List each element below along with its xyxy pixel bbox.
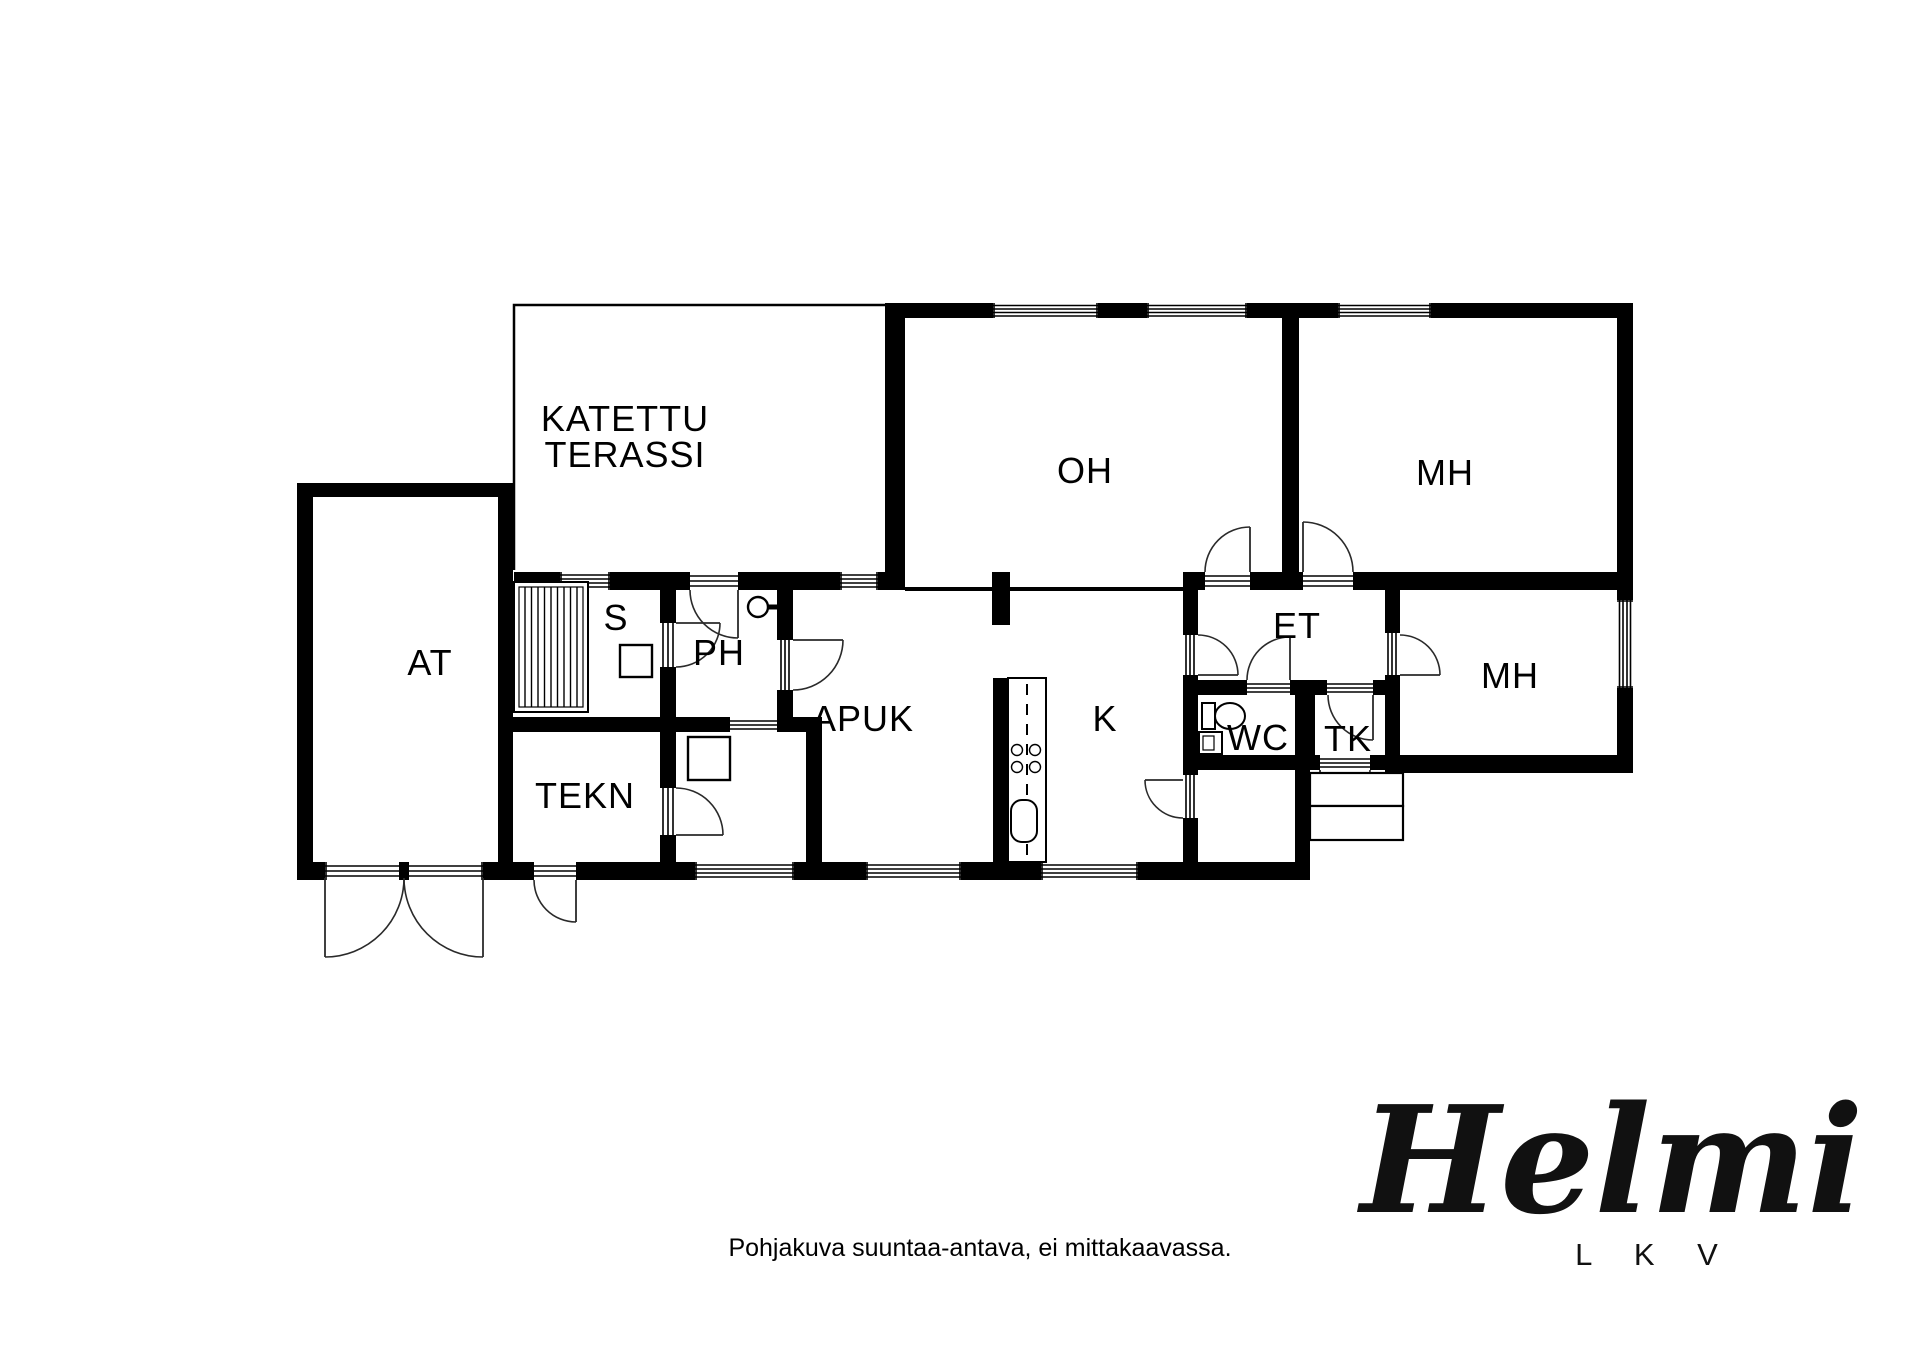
logo-name-text: Helmi bbox=[1356, 1073, 1863, 1247]
window-oh-1 bbox=[993, 303, 1098, 318]
room-label-s: S bbox=[603, 597, 628, 638]
room-label-wc: WC bbox=[1227, 717, 1289, 758]
washing-machine-icon bbox=[688, 737, 730, 780]
room-label-mh-right: MH bbox=[1481, 655, 1539, 696]
door-tekn-shower bbox=[676, 788, 723, 835]
room-label-tekn: TEKN bbox=[535, 775, 635, 816]
door-et-oh bbox=[1205, 527, 1250, 572]
room-label-mh-top: MH bbox=[1416, 452, 1474, 493]
window-oh-2 bbox=[1147, 303, 1247, 318]
window-shower-bottom bbox=[695, 862, 794, 880]
room-label-oh: OH bbox=[1057, 450, 1113, 491]
door-et-mh-right bbox=[1400, 635, 1440, 675]
disclaimer-text: Pohjakuva suuntaa-antava, ei mittakaavas… bbox=[728, 1234, 1231, 1262]
door-at-double-right bbox=[404, 878, 483, 957]
door-et-mh-top bbox=[1303, 522, 1353, 572]
entry-steps bbox=[1310, 773, 1403, 840]
logo-subtitle-text: L K V bbox=[1575, 1237, 1735, 1272]
sauna-bench-icon bbox=[514, 582, 588, 712]
window-apuk-top bbox=[840, 572, 878, 590]
room-label-terrace-line1: KATETTU bbox=[541, 398, 709, 439]
floorplan-page: KATETTU TERASSI OH MH MH AT S PH APUK K … bbox=[0, 0, 1909, 1350]
room-label-terrace-line2: TERASSI bbox=[544, 434, 705, 475]
door-corridor-k bbox=[1145, 780, 1183, 818]
room-label-apuk: APUK bbox=[812, 698, 914, 739]
room-label-ph: PH bbox=[693, 632, 745, 673]
window-mh-top bbox=[1338, 303, 1431, 318]
windows bbox=[560, 303, 1633, 880]
sink-icon bbox=[1011, 800, 1037, 842]
door-terrace-ph bbox=[690, 590, 738, 638]
room-label-at: AT bbox=[407, 642, 452, 683]
sauna-stove-icon bbox=[620, 645, 652, 677]
door-tekn-exterior bbox=[534, 880, 576, 922]
room-label-tk: TK bbox=[1324, 718, 1372, 759]
window-kitchen-bottom bbox=[1041, 862, 1138, 880]
room-label-k: K bbox=[1092, 698, 1117, 739]
door-ph-apuk bbox=[793, 640, 843, 690]
room-label-et: ET bbox=[1273, 605, 1321, 646]
window-apuk-bottom bbox=[866, 862, 961, 880]
helmi-lkv-logo: Helmi L K V bbox=[1356, 1073, 1863, 1272]
walls bbox=[297, 303, 1633, 880]
window-mh-right bbox=[1617, 600, 1633, 688]
floor-plan: KATETTU TERASSI OH MH MH AT S PH APUK K … bbox=[0, 0, 1909, 1350]
door-k-et bbox=[1198, 635, 1238, 675]
wc-basin-icon bbox=[1199, 732, 1222, 754]
kitchen-island bbox=[1008, 678, 1046, 862]
door-at-double-left bbox=[325, 878, 404, 957]
shower-icon bbox=[748, 597, 779, 617]
